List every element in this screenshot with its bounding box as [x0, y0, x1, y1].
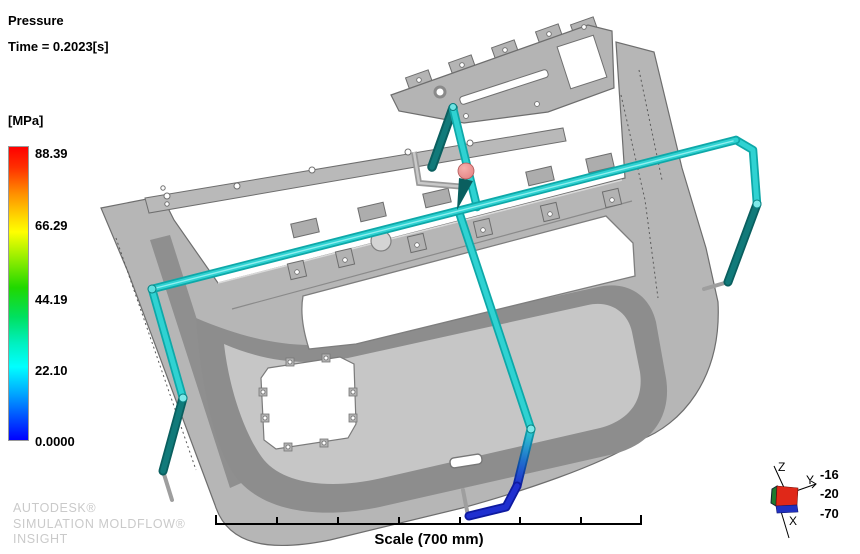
triad-cube-bottom-face [776, 505, 798, 513]
legend-tick-25: 22.10 [35, 364, 68, 377]
speaker-cutout [261, 357, 356, 449]
scale-bar-label: Scale (700 mm) [215, 531, 643, 548]
time-label: Time = 0.2023[s] [8, 39, 109, 54]
bracket-hole [435, 87, 445, 97]
rotation-readout-z: -70 [820, 507, 839, 520]
legend-tick-max: 88.39 [35, 147, 68, 160]
watermark-line-2: SIMULATION MOLDFLOW® [13, 517, 185, 533]
axis-z-label: Z [778, 461, 785, 473]
legend-tick-50: 44.19 [35, 293, 68, 306]
watermark-line-1: AUTODESK® [13, 501, 185, 517]
axis-y-label: Y [806, 474, 814, 486]
rotation-readout-x: -16 [820, 468, 839, 481]
door-panel-model-canvas[interactable] [0, 0, 860, 554]
triad-cube-top-face [776, 486, 798, 506]
axis-x-label: X [789, 515, 797, 527]
moldflow-viewport[interactable]: Pressure Time = 0.2023[s] [MPa] 88.39 66… [0, 0, 860, 554]
injection-location-marker[interactable] [458, 163, 474, 179]
legend-tick-min: 0.0000 [35, 435, 75, 448]
rotation-readout-y: -20 [820, 487, 839, 500]
result-title: Pressure [8, 13, 64, 28]
legend-tick-75: 66.29 [35, 219, 68, 232]
autodesk-watermark: AUTODESK® SIMULATION MOLDFLOW® INSIGHT [13, 501, 185, 548]
legend-unit-label: [MPa] [8, 113, 43, 128]
legend-colorbar [9, 147, 28, 440]
upper-bracket [391, 17, 614, 123]
watermark-line-3: INSIGHT [13, 532, 185, 548]
